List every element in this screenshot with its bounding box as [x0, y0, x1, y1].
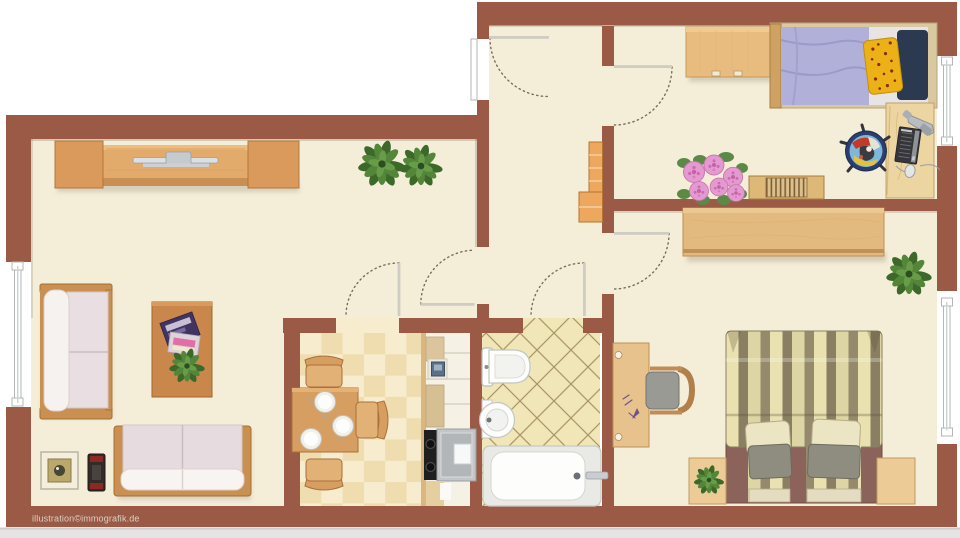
svg-text:illustration©immografik.de: illustration©immografik.de [32, 514, 140, 524]
